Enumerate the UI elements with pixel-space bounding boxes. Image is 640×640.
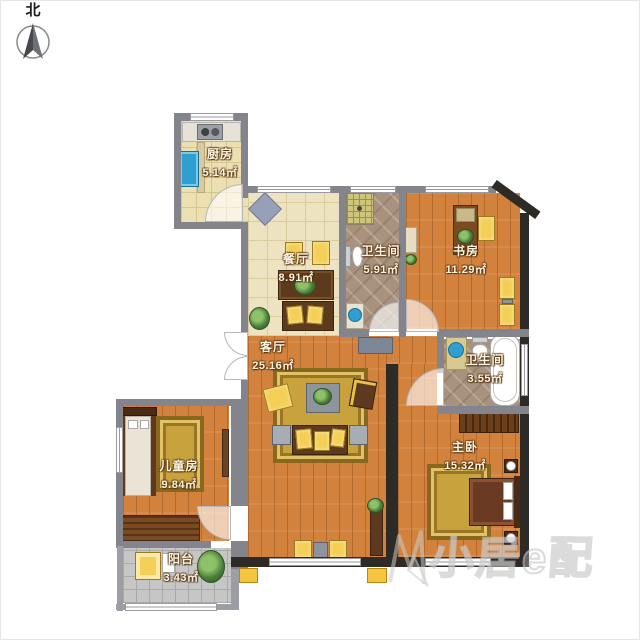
balcony-wall <box>117 546 123 611</box>
master-name: 主卧 <box>444 438 486 455</box>
window-seat-chair <box>294 540 312 558</box>
hallway-floor <box>386 336 437 364</box>
kitchen-sink-icon <box>179 151 199 187</box>
desk-top <box>456 208 475 222</box>
bath-small-area: 3.55㎡ <box>465 370 504 386</box>
window <box>190 113 234 121</box>
compass: 北 <box>9 3 57 65</box>
dining-name: 餐厅 <box>279 250 314 267</box>
study-label: 书房 11.29㎡ <box>446 242 487 277</box>
floor-plant-icon <box>249 307 270 330</box>
window <box>521 344 528 396</box>
corner-cabinet <box>370 506 383 556</box>
balcony-name: 阳台 <box>164 550 199 567</box>
kids-area: 9.84㎡ <box>159 476 198 492</box>
pillow <box>128 420 138 429</box>
window <box>425 558 491 566</box>
kitchen-label: 厨房 5.14㎡ <box>203 145 238 180</box>
basin-icon <box>448 342 464 358</box>
floor-plan: 厨房 5.14㎡ 餐厅 8.91㎡ 卫生间 5.91㎡ 书房 11.29㎡ 客厅… <box>0 0 640 640</box>
kitchen-area: 5.14㎡ <box>203 164 238 180</box>
lamp-icon <box>506 461 516 471</box>
balcony-chair <box>135 552 161 580</box>
wall <box>386 364 398 559</box>
dining-label: 餐厅 8.91㎡ <box>279 250 314 285</box>
living-area: 25.16㎡ <box>252 357 294 373</box>
window-seat-chair <box>329 540 347 558</box>
balcony-wall <box>231 569 239 610</box>
corner-plant-icon <box>367 498 384 513</box>
wall <box>174 113 181 229</box>
study-plant-icon <box>405 254 417 265</box>
window <box>350 186 396 193</box>
stove-icon <box>197 124 223 140</box>
window-seat-table <box>313 542 328 558</box>
kids-bed-rail <box>151 416 156 496</box>
pillow <box>503 502 513 520</box>
wall <box>437 329 529 337</box>
bath-main-area: 5.91㎡ <box>361 261 400 277</box>
study-side-chair <box>499 304 515 326</box>
balcony-window <box>125 603 217 611</box>
bench-cushion <box>286 305 304 325</box>
master-label: 主卧 15.32㎡ <box>444 438 486 473</box>
window <box>269 558 361 566</box>
kids-label: 儿童房 9.84㎡ <box>159 457 198 492</box>
lamp-icon <box>506 533 516 543</box>
bath-small-name: 卫生间 <box>465 351 504 368</box>
compass-north-label: 北 <box>9 3 57 19</box>
shower-drain-icon <box>357 206 362 211</box>
kids-bed-headboard <box>121 407 157 416</box>
pillow <box>503 482 513 500</box>
wall <box>437 406 529 414</box>
ac-unit <box>239 568 258 583</box>
wall <box>116 399 244 406</box>
wall <box>339 186 346 336</box>
kitchen-name: 厨房 <box>203 145 238 162</box>
kids-name: 儿童房 <box>159 457 198 474</box>
coffee-table-plant-icon <box>313 388 332 405</box>
kids-tv-board <box>222 429 229 477</box>
basin-icon <box>348 308 362 322</box>
wall <box>116 541 211 548</box>
sofa-cushion <box>295 428 313 449</box>
end-table <box>272 425 291 445</box>
wall <box>339 329 369 337</box>
study-side-chair <box>499 277 515 299</box>
balcony-plant-icon <box>197 550 225 583</box>
balcony-area: 3.43㎡ <box>164 569 199 585</box>
sofa-cushion <box>314 431 330 451</box>
wall <box>241 222 248 333</box>
bench-cushion <box>306 305 324 324</box>
pillow <box>140 420 149 429</box>
entry-door-arc <box>224 332 248 356</box>
window <box>257 186 331 193</box>
balcony-label: 阳台 3.43㎡ <box>164 550 199 585</box>
wall <box>437 332 444 373</box>
ac-unit <box>367 568 387 583</box>
master-wardrobe <box>459 413 519 433</box>
dining-chair <box>312 241 330 265</box>
toilet-tank <box>472 337 488 343</box>
study-name: 书房 <box>446 242 487 259</box>
study-area: 11.29㎡ <box>446 261 487 277</box>
window <box>116 427 123 473</box>
armchair <box>349 378 377 410</box>
living-label: 客厅 25.16㎡ <box>252 338 294 373</box>
wall <box>399 329 406 337</box>
entry-door-arc <box>224 356 248 380</box>
master-area: 15.32㎡ <box>444 457 486 473</box>
compass-icon <box>11 19 55 65</box>
dining-area: 8.91㎡ <box>279 269 314 285</box>
bath-main-name: 卫生间 <box>361 242 400 259</box>
desk-chair <box>478 216 495 241</box>
bath-small-label: 卫生间 3.55㎡ <box>465 351 504 386</box>
living-name: 客厅 <box>252 338 294 355</box>
tv-cabinet <box>358 337 393 354</box>
wall <box>174 222 248 229</box>
window <box>425 186 489 193</box>
kids-wardrobe <box>122 515 200 541</box>
wall <box>231 399 248 506</box>
end-table <box>349 425 368 445</box>
sofa-cushion <box>330 428 346 448</box>
bath-main-label: 卫生间 5.91㎡ <box>361 242 400 277</box>
